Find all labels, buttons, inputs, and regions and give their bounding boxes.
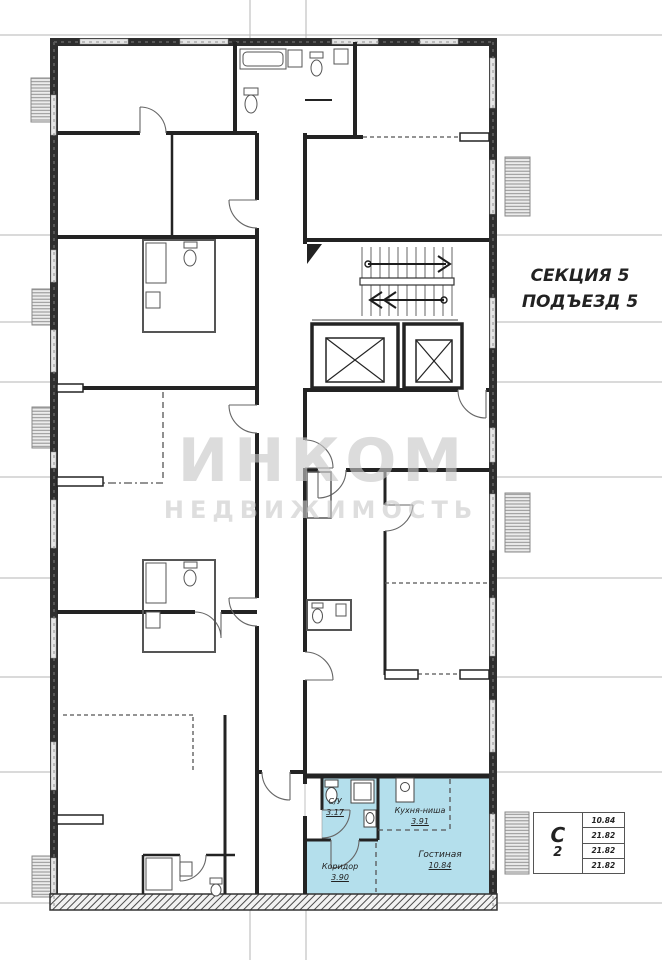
entrance-label: ПОДЪЕЗД 5: [500, 289, 660, 315]
section-labels: СЕКЦИЯ 5 ПОДЪЕЗД 5: [500, 263, 660, 316]
room-name: Гостиная: [418, 850, 461, 860]
room-label-kitchen: Кухня-ниша 3.91: [381, 806, 459, 828]
unit-area-row: 10.84: [583, 813, 624, 828]
elevator-shafts: [312, 324, 462, 388]
unit-area-row: 21.82: [583, 828, 624, 843]
unit-area-row: 21.82: [583, 844, 624, 859]
unit-areas-column: 10.84 21.82 21.82 21.82: [583, 813, 624, 873]
unit-info-table: С 2 10.84 21.82 21.82 21.82: [533, 812, 625, 874]
room-area: 3.90: [309, 873, 371, 884]
unit-type-cell: С 2: [534, 813, 583, 873]
watermark-tagline: НЕДВИЖИМОСТЬ: [156, 496, 486, 524]
room-area: 10.84: [398, 861, 482, 872]
unit-number: 2: [553, 845, 562, 861]
room-name: С/У: [328, 797, 341, 806]
room-name: Кухня-ниша: [395, 806, 446, 815]
stair-handrail: [360, 278, 454, 285]
floor-plan-page: ИНКОМ НЕДВИЖИМОСТЬ СЕКЦИЯ 5 ПОДЪЕЗД 5 С/…: [0, 0, 662, 960]
room-label-bathroom: С/У 3.17: [314, 797, 356, 819]
room-name: Коридор: [322, 862, 358, 871]
watermark-brand: ИНКОМ: [168, 426, 478, 496]
unit-type: С: [550, 825, 565, 845]
section-label: СЕКЦИЯ 5: [500, 263, 660, 289]
unit-area-row: 21.82: [583, 859, 624, 873]
room-label-living: Гостиная 10.84: [398, 849, 482, 872]
room-area: 3.91: [381, 817, 459, 828]
room-label-corridor: Коридор 3.90: [309, 862, 371, 884]
room-area: 3.17: [314, 808, 356, 819]
